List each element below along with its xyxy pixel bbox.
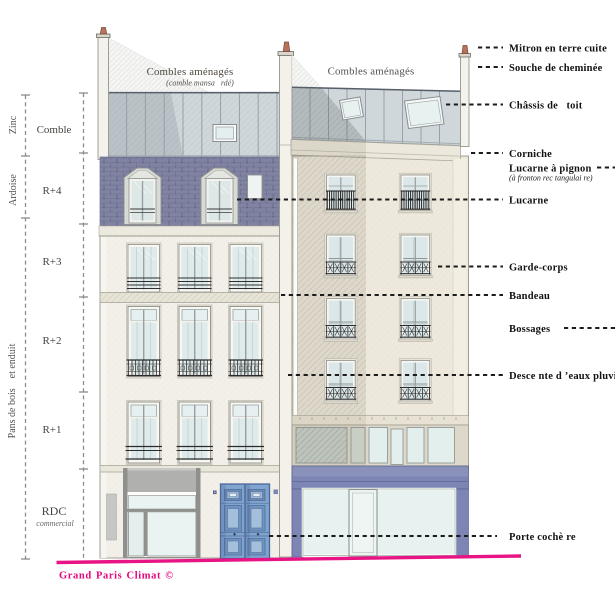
svg-text:R+2: R+2 xyxy=(42,335,61,347)
svg-text:Mitron en terre cuite: Mitron en terre cuite xyxy=(509,44,607,55)
svg-text:Châssis de toit: Châssis de toit xyxy=(509,101,583,112)
svg-text:Lucarne: Lucarne xyxy=(509,196,548,207)
svg-text:Bandeau: Bandeau xyxy=(509,291,550,302)
svg-text:Porte cochè re: Porte cochè re xyxy=(509,532,576,543)
svg-text:RDC: RDC xyxy=(42,504,67,518)
svg-text:Zinc: Zinc xyxy=(8,115,19,134)
svg-text:(comble mansa rdé): (comble mansa rdé) xyxy=(166,79,234,88)
svg-text:Comble: Comble xyxy=(37,124,72,136)
svg-text:commercial: commercial xyxy=(36,519,74,528)
svg-text:Desce nte d ’eaux pluviales: Desce nte d ’eaux pluviales xyxy=(509,371,615,382)
svg-text:R+4: R+4 xyxy=(42,185,62,197)
svg-text:Garde-corps: Garde-corps xyxy=(509,263,568,274)
svg-text:Grand Paris Climat ©: Grand Paris Climat © xyxy=(59,571,174,582)
svg-text:Corniche: Corniche xyxy=(509,149,552,160)
svg-text:Pans de bois et enduit: Pans de bois et enduit xyxy=(7,343,18,438)
svg-text:Ardoise: Ardoise xyxy=(8,174,19,206)
svg-text:(à fronton rec tangulai re): (à fronton rec tangulai re) xyxy=(509,174,593,183)
svg-text:R+1: R+1 xyxy=(42,424,61,436)
svg-text:Combles aménagés: Combles aménagés xyxy=(147,66,234,78)
svg-text:Combles aménagés: Combles aménagés xyxy=(328,66,415,78)
svg-text:Souche de cheminée: Souche de cheminée xyxy=(509,63,603,74)
svg-text:Bossages: Bossages xyxy=(509,324,550,335)
svg-text:R+3: R+3 xyxy=(42,256,62,268)
